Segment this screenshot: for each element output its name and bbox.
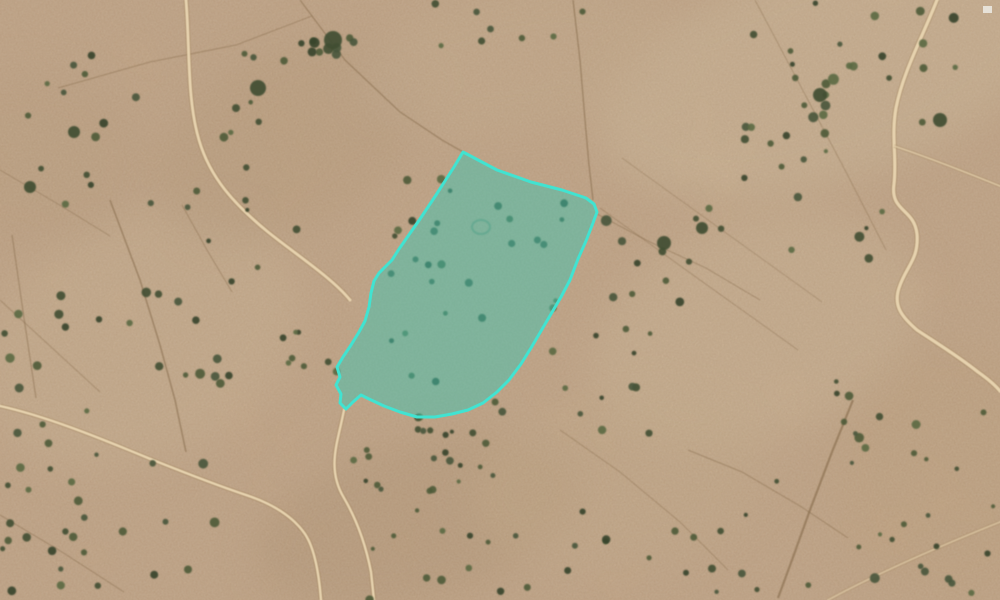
satellite-map-canvas[interactable] (0, 0, 1000, 600)
satellite-map-view[interactable] (0, 0, 1000, 600)
small-building (983, 6, 992, 13)
